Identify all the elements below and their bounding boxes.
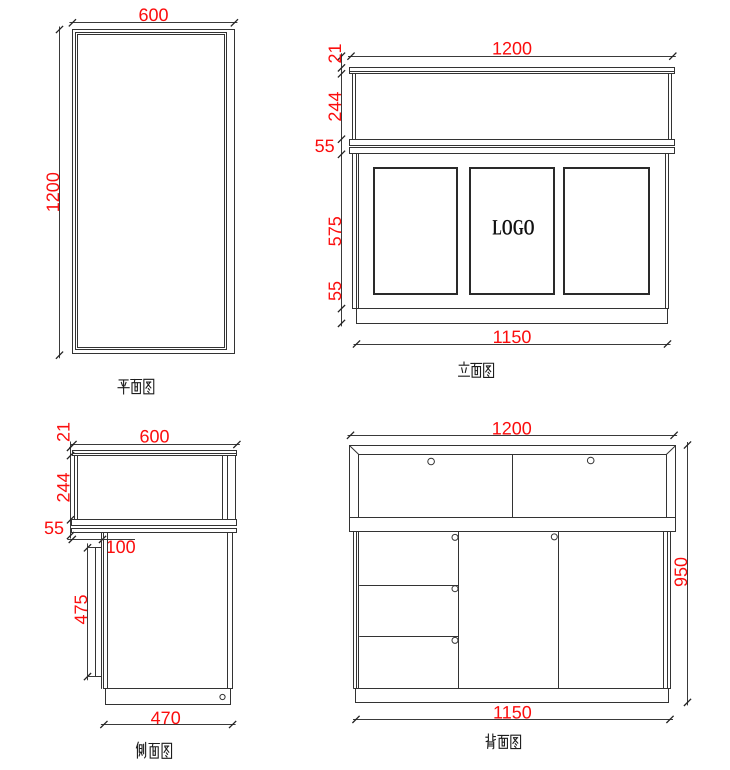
svg-text:575: 575	[325, 216, 345, 246]
svg-text:100: 100	[106, 537, 136, 557]
svg-text:LOGO: LOGO	[492, 214, 534, 239]
svg-text:55: 55	[44, 518, 64, 538]
svg-text:1150: 1150	[493, 703, 532, 723]
svg-text:55: 55	[325, 281, 345, 301]
svg-text:21: 21	[53, 422, 73, 442]
svg-text:1150: 1150	[493, 327, 532, 347]
svg-text:950: 950	[671, 557, 691, 587]
svg-text:55: 55	[315, 136, 335, 156]
svg-text:1200: 1200	[492, 38, 532, 58]
svg-text:600: 600	[139, 426, 169, 446]
svg-text:21: 21	[325, 43, 345, 63]
svg-text:470: 470	[151, 708, 181, 728]
svg-text:1200: 1200	[492, 418, 532, 438]
svg-text:244: 244	[53, 472, 73, 502]
svg-text:600: 600	[138, 5, 168, 25]
svg-text:475: 475	[71, 594, 91, 624]
svg-text:1200: 1200	[43, 172, 63, 212]
svg-text:244: 244	[325, 92, 345, 122]
